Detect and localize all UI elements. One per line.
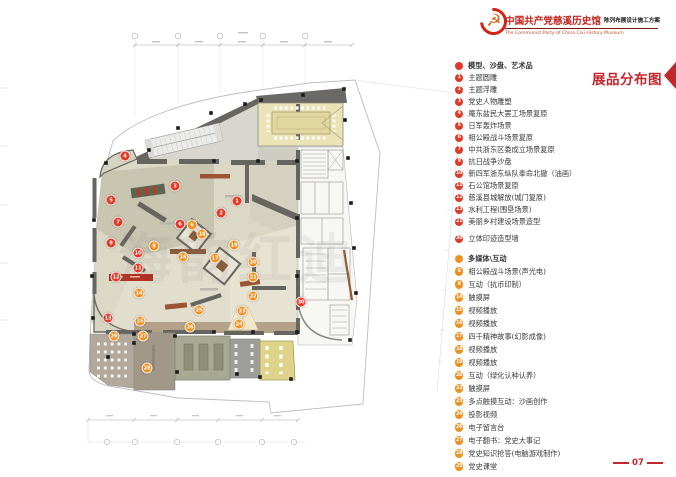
legend-item-label: 石公馆场景复原 — [468, 181, 518, 191]
legend-item-label: 投影视频 — [468, 410, 497, 420]
plan-marker-14: 14 — [134, 288, 145, 299]
legend-section-header: 模型、沙盘、艺术品 — [455, 60, 673, 72]
legend-item-label: 相公殿战斗场景复原 — [468, 133, 533, 143]
legend-item-number: 29 — [455, 462, 463, 470]
legend-item-number: 17 — [455, 332, 463, 340]
plan-marker-12: 12 — [111, 272, 122, 283]
legend-item: 1主题圆雕 — [455, 72, 673, 84]
hammer-sickle-icon: ☭ — [482, 9, 506, 33]
legend-item-label: 视频播放 — [468, 319, 497, 329]
legend-section-title: 多媒体\互动 — [468, 254, 507, 264]
legend-item-label: 美丽乡村建设场景造型 — [468, 217, 540, 227]
legend-item: 17四千精神故事(幻影成像) — [455, 330, 673, 343]
legend-item-number: 6 — [455, 134, 463, 142]
museum-title-en: The Communist Party of China Cixi Histor… — [505, 31, 624, 36]
legend-item: 10新四军浙东纵队奉命北撤（油画） — [455, 168, 673, 180]
legend-item-label: 相公殿战斗场景(声光电) — [468, 267, 545, 277]
legend-item-number: 4 — [455, 110, 463, 118]
plan-marker-6: 6 — [187, 220, 198, 231]
legend-item-label: 触摸屏 — [468, 384, 490, 394]
legend-item-label: 触摸屏 — [468, 293, 490, 303]
legend-item-label: 多点触摸互动：沙画创作 — [468, 397, 547, 407]
legend-item: 5日军轰炸场景 — [455, 120, 673, 132]
legend-item-label: 水利工程(围垦场景) — [468, 205, 531, 215]
legend-item: 9抗日战争沙盘 — [455, 156, 673, 168]
legend-item: 21美丽乡村建设场景造型 — [455, 216, 673, 228]
plan-marker-17: 17 — [210, 253, 221, 264]
legend-section: 多媒体\互动6相公殿战斗场景(声光电)8互动（抗币印制）14触摸屏15视频播放1… — [455, 252, 673, 473]
plan-marker-3: 3 — [170, 181, 181, 192]
legend-item-label: 互动（绿化认种认养） — [468, 371, 540, 381]
plan-marker-4: 4 — [120, 151, 131, 162]
legend-item-number: 30 — [455, 235, 463, 243]
legend-section-title: 模型、沙盘、艺术品 — [468, 61, 533, 71]
legend-item: 6相公殿战斗场景(声光电) — [455, 265, 673, 278]
legend-item-number: 18 — [455, 345, 463, 353]
plan-marker-23: 23 — [237, 306, 248, 317]
legend-item-number: 12 — [455, 194, 463, 202]
legend-item-number: 21 — [455, 218, 463, 226]
plan-marker-19: 19 — [229, 240, 240, 251]
legend-item-label: 庵东盐民大罢工场景复原 — [468, 109, 547, 119]
legend-item: 2主题浮雕 — [455, 84, 673, 96]
legend-item-number: 10 — [455, 170, 463, 178]
plan-marker-27: 27 — [138, 331, 149, 342]
legend-item-number: 20 — [455, 371, 463, 379]
plan-marker-29: 29 — [109, 331, 120, 342]
plan-marker-1: 1 — [232, 196, 243, 207]
legend-item: 20互动（绿化认种认养） — [455, 369, 673, 382]
legend-item-number: 9 — [455, 158, 463, 166]
project-subtitle: 陈列布展设计施工方案 — [604, 16, 660, 24]
legend-dot-icon — [455, 255, 463, 263]
legend-item: 16视频播放 — [455, 317, 673, 330]
legend-section: 模型、沙盘、艺术品1主题圆雕2主题浮雕3党史人物雕塑4庵东盐民大罢工场景复原5日… — [455, 60, 673, 245]
plan-marker-10: 10 — [133, 248, 144, 259]
plan-marker-25: 25 — [194, 305, 205, 316]
legend-item: 4庵东盐民大罢工场景复原 — [455, 108, 673, 120]
legend-item-number: 22 — [455, 384, 463, 392]
legend-item-number: 7 — [455, 146, 463, 154]
legend-item-number: 1 — [455, 74, 463, 82]
legend-item: 22触摸屏 — [455, 382, 673, 395]
legend-item-number: 14 — [455, 293, 463, 301]
page-number-dash — [647, 462, 663, 463]
legend-item-number: 27 — [455, 436, 463, 444]
legend-item-number: 6 — [455, 267, 463, 275]
legend-item: 13水利工程(围垦场景) — [455, 204, 673, 216]
plan-marker-6: 6 — [175, 219, 186, 230]
legend-item-number: 8 — [455, 280, 463, 288]
legend-item-label: 电子翻书：党史大事记 — [468, 436, 540, 446]
header-rule — [505, 28, 658, 29]
plan-marker-7: 7 — [113, 217, 124, 228]
legend-item-label: 抗日战争沙盘 — [468, 157, 511, 167]
plan-marker-5: 5 — [106, 195, 117, 206]
legend-item: 26电子留言台 — [455, 421, 673, 434]
legend-item-label: 中共浙东区委成立场景复原 — [468, 145, 554, 155]
legend-item: 30立体印迹造型墙 — [455, 233, 673, 245]
legend-item-number: 28 — [455, 449, 463, 457]
page-number-dash — [613, 462, 629, 463]
plan-marker-11: 11 — [133, 263, 144, 274]
page-number-value: 07 — [632, 458, 644, 468]
legend-item-label: 新四军浙东纵队奉命北撤（油画） — [468, 169, 576, 179]
legend-item: 8互动（抗币印制） — [455, 278, 673, 291]
legend-item: 18视频播放 — [455, 343, 673, 356]
plan-marker-15: 15 — [135, 316, 146, 327]
legend: 模型、沙盘、艺术品1主题圆雕2主题浮雕3党史人物雕塑4庵东盐民大罢工场景复原5日… — [455, 60, 673, 473]
legend-item-number: 13 — [455, 206, 463, 214]
plan-marker-28: 28 — [142, 363, 153, 374]
museum-title: 中国共产党慈溪历史馆 — [505, 13, 601, 27]
legend-item-label: 主题圆雕 — [468, 73, 497, 83]
legend-item-label: 立体印迹造型墙 — [468, 234, 518, 244]
legend-section-header: 多媒体\互动 — [455, 252, 673, 265]
legend-item-label: 党史知识抢答(电脑游戏制作) — [468, 449, 560, 459]
plan-marker-21: 21 — [248, 272, 259, 283]
legend-item-label: 视频播放 — [468, 358, 497, 368]
plan-marker-2: 2 — [216, 208, 227, 219]
legend-item-number: 16 — [455, 319, 463, 327]
legend-item: 11石公馆场景复原 — [455, 180, 673, 192]
plan-marker-20: 20 — [248, 257, 259, 268]
page-number: 07 — [613, 458, 663, 468]
plan-marker-22: 22 — [248, 291, 259, 302]
legend-item-label: 视频播放 — [468, 306, 497, 316]
legend-item-label: 党史人物雕塑 — [468, 97, 511, 107]
legend-item-number: 3 — [455, 98, 463, 106]
legend-item-label: 党史课堂 — [468, 462, 497, 472]
plan-marker-9: 9 — [106, 238, 117, 249]
legend-item-number: 2 — [455, 86, 463, 94]
legend-dot-icon — [455, 62, 463, 70]
watermark: 海韵红迪 — [118, 228, 358, 291]
legend-item-number: 5 — [455, 122, 463, 130]
legend-item: 15视频播放 — [455, 304, 673, 317]
plan-marker-30: 30 — [296, 297, 307, 308]
plan-marker-8: 8 — [149, 241, 160, 252]
legend-item: 24投影视频 — [455, 408, 673, 421]
legend-item-number: 26 — [455, 423, 463, 431]
legend-item-number: 15 — [455, 306, 463, 314]
legend-item-label: 四千精神故事(幻影成像) — [468, 332, 545, 342]
legend-item-number: 11 — [455, 182, 463, 190]
legend-item-label: 主题浮雕 — [468, 85, 497, 95]
legend-item-label: 互动（抗币印制） — [468, 280, 526, 290]
legend-item: 23多点触摸互动：沙画创作 — [455, 395, 673, 408]
plan-marker-18: 18 — [197, 229, 208, 240]
legend-item: 6相公殿战斗场景复原 — [455, 132, 673, 144]
legend-item-number: 23 — [455, 397, 463, 405]
design-sheet: 海韵红迪 12345679101112133068141516171819202… — [0, 0, 676, 477]
plan-marker-24: 24 — [234, 319, 245, 330]
plan-marker-13: 13 — [103, 313, 114, 324]
legend-item: 19视频播放 — [455, 356, 673, 369]
legend-item-number: 19 — [455, 358, 463, 366]
legend-item-label: 日军轰炸场景 — [468, 121, 511, 131]
legend-item-label: 慈溪县城解放(城门复原) — [468, 193, 545, 203]
plan-marker-26: 26 — [185, 322, 196, 333]
legend-item-number: 24 — [455, 410, 463, 418]
legend-item: 3党史人物雕塑 — [455, 96, 673, 108]
legend-item: 7中共浙东区委成立场景复原 — [455, 144, 673, 156]
legend-item-label: 视频播放 — [468, 345, 497, 355]
legend-item-label: 电子留言台 — [468, 423, 504, 433]
legend-item: 14触摸屏 — [455, 291, 673, 304]
legend-item: 12慈溪县城解放(城门复原) — [455, 192, 673, 204]
legend-item: 27电子翻书：党史大事记 — [455, 434, 673, 447]
plan-marker-16: 16 — [178, 252, 189, 263]
